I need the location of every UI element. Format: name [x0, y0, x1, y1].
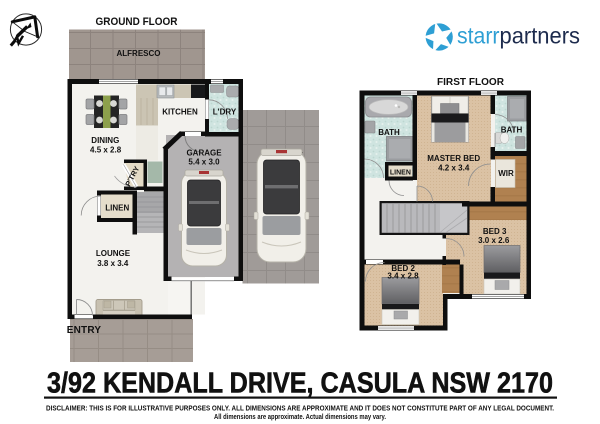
svg-text:BED 3: BED 3: [483, 227, 507, 236]
svg-text:DISCLAIMER: THIS IS FOR ILLUST: DISCLAIMER: THIS IS FOR ILLUSTRATIVE PUR…: [46, 406, 554, 413]
svg-text:KITCHEN: KITCHEN: [162, 108, 198, 117]
svg-text:FIRST FLOOR: FIRST FLOOR: [437, 76, 504, 88]
svg-text:LINEN: LINEN: [390, 170, 411, 177]
svg-text:3/92 KENDALL DRIVE, CASULA NSW: 3/92 KENDALL DRIVE, CASULA NSW 2170: [47, 368, 553, 400]
svg-text:WIR: WIR: [498, 169, 514, 178]
svg-text:3.8 x 3.4: 3.8 x 3.4: [97, 259, 129, 268]
svg-text:ENTRY: ENTRY: [67, 325, 102, 336]
svg-text:L'DRY: L'DRY: [213, 108, 237, 117]
svg-text:partners: partners: [500, 23, 581, 49]
svg-text:LOUNGE: LOUNGE: [96, 249, 131, 258]
svg-text:GARAGE: GARAGE: [186, 149, 222, 158]
svg-text:DINING: DINING: [91, 136, 119, 145]
svg-text:GROUND FLOOR: GROUND FLOOR: [96, 16, 178, 28]
svg-text:3.4 x 2.8: 3.4 x 2.8: [387, 272, 419, 281]
svg-text:4.2 x 3.4: 4.2 x 3.4: [438, 164, 470, 173]
svg-text:3.0 x 2.6: 3.0 x 2.6: [478, 236, 510, 245]
svg-text:MASTER BED: MASTER BED: [427, 154, 480, 163]
svg-text:BATH: BATH: [378, 128, 400, 137]
svg-text:5.4 x 3.0: 5.4 x 3.0: [188, 158, 220, 167]
svg-text:starr: starr: [457, 23, 500, 49]
svg-text:All dimensions are approximate: All dimensions are approximate. Actual d…: [214, 414, 386, 421]
svg-text:4.5 x 2.8: 4.5 x 2.8: [90, 146, 122, 155]
svg-text:LINEN: LINEN: [105, 204, 129, 213]
svg-text:BATH: BATH: [501, 126, 523, 135]
svg-text:ALFRESCO: ALFRESCO: [117, 49, 161, 58]
